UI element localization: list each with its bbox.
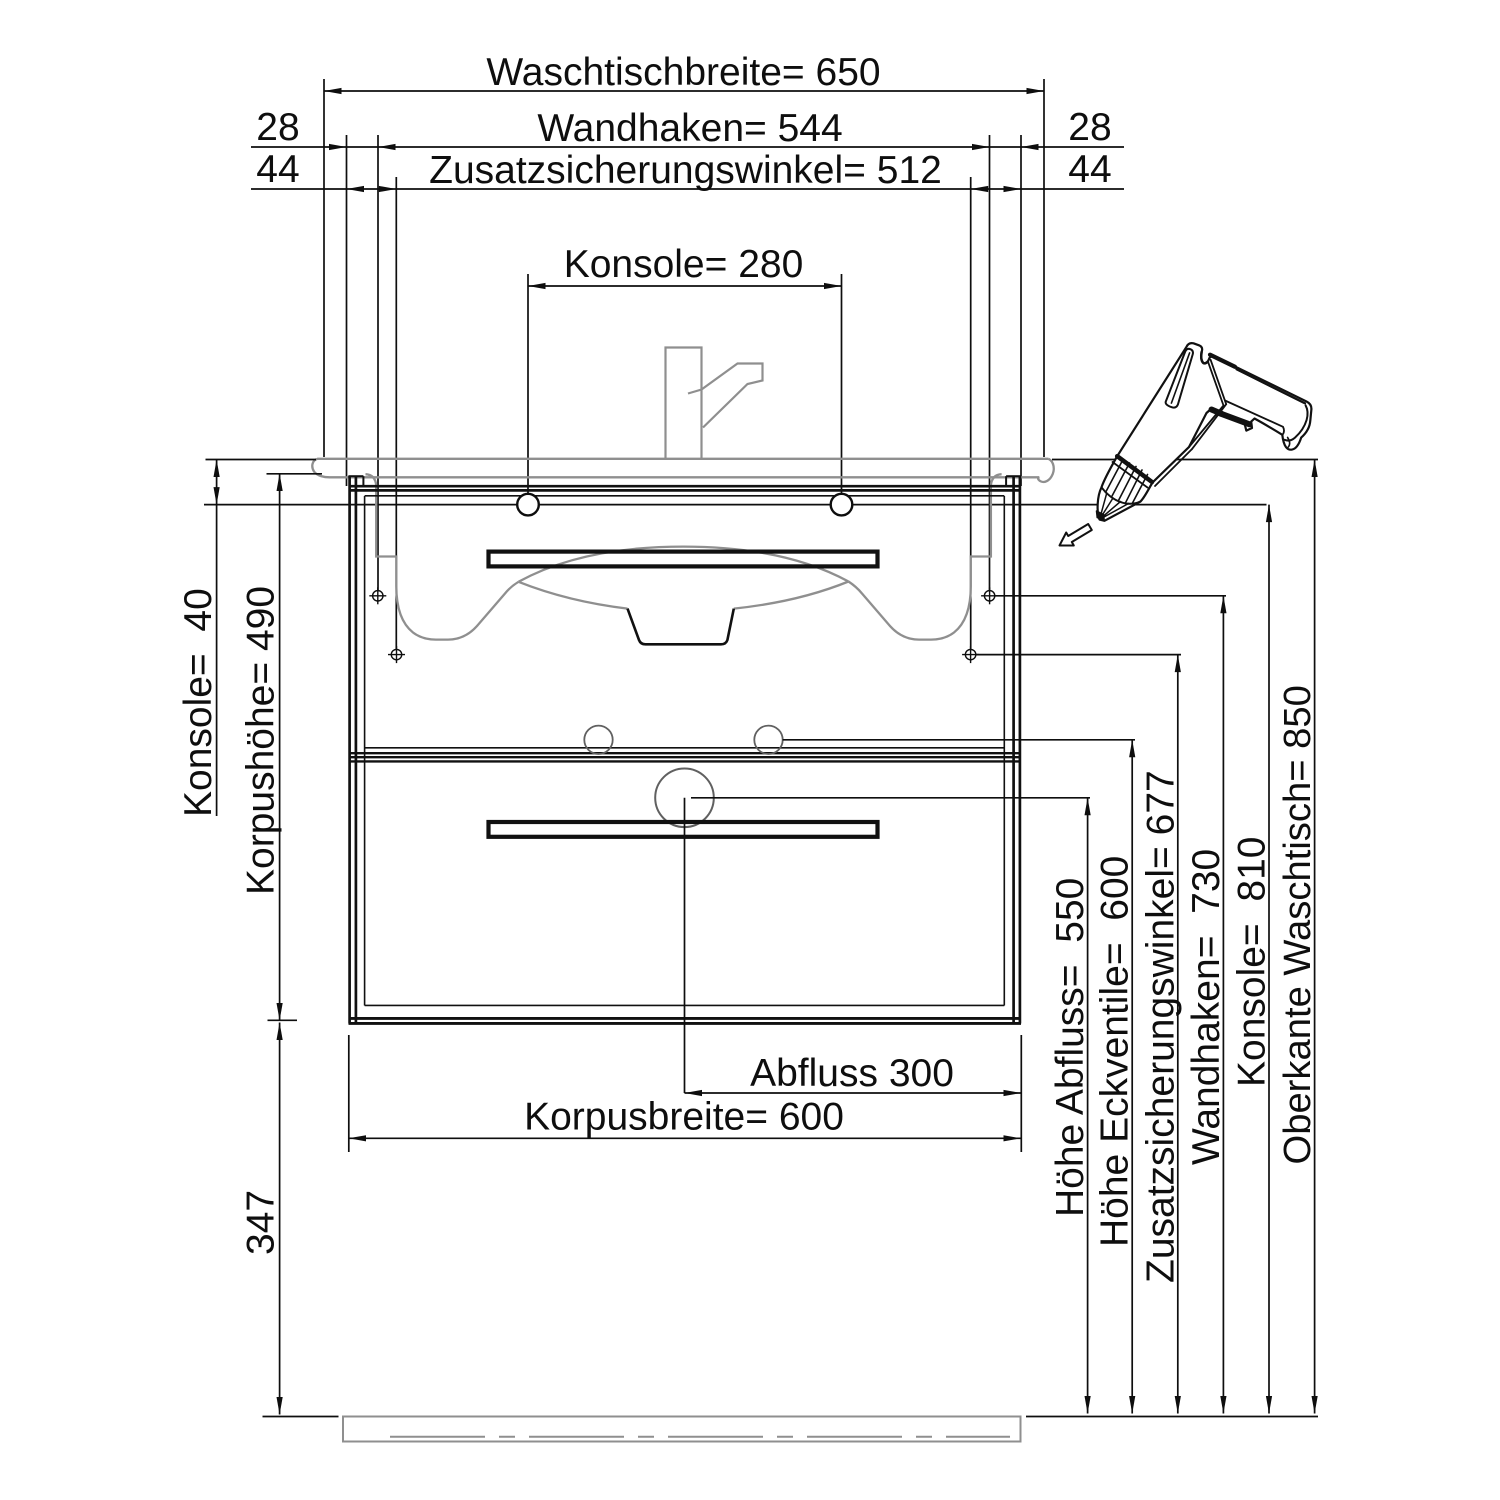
svg-text:Konsole= 810: Konsole= 810: [1231, 837, 1274, 1087]
svg-text:28: 28: [256, 106, 299, 149]
svg-text:Höhe Abfluss= 550: Höhe Abfluss= 550: [1049, 878, 1092, 1217]
svg-text:Wandhaken= 544: Wandhaken= 544: [537, 107, 842, 150]
svg-text:28: 28: [1068, 106, 1111, 149]
svg-text:Korpusbreite= 600: Korpusbreite= 600: [524, 1096, 844, 1139]
svg-text:44: 44: [256, 148, 299, 191]
svg-text:Konsole= 280: Konsole= 280: [564, 243, 804, 286]
svg-text:Zusatzsicherungswinkel= 677: Zusatzsicherungswinkel= 677: [1139, 770, 1182, 1283]
svg-text:347: 347: [240, 1190, 283, 1255]
svg-text:44: 44: [1068, 148, 1111, 191]
svg-text:Abfluss 300: Abfluss 300: [750, 1052, 954, 1095]
svg-text:Waschtischbreite= 650: Waschtischbreite= 650: [486, 51, 880, 94]
svg-text:Oberkante Waschtisch= 850: Oberkante Waschtisch= 850: [1276, 685, 1319, 1164]
svg-text:Wandhaken= 730: Wandhaken= 730: [1185, 849, 1228, 1165]
svg-text:Korpushöhe= 490: Korpushöhe= 490: [240, 586, 283, 895]
svg-text:Höhe Eckventile= 600: Höhe Eckventile= 600: [1094, 856, 1137, 1247]
svg-text:Zusatzsicherungswinkel= 512: Zusatzsicherungswinkel= 512: [429, 149, 942, 192]
svg-text:Konsole= 40: Konsole= 40: [177, 588, 220, 817]
